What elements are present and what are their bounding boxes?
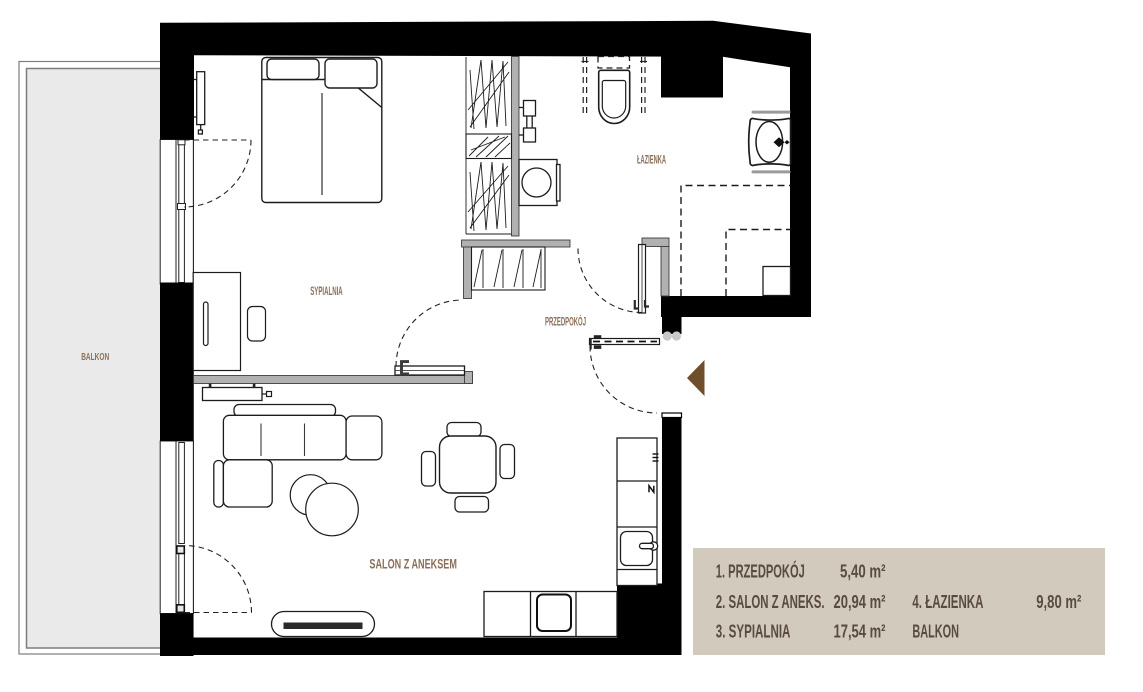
svg-text:1. PRZEDPOKÓJ: 1. PRZEDPOKÓJ <box>716 561 805 582</box>
svg-text:2. SALON Z ANEKS.: 2. SALON Z ANEKS. <box>716 591 825 612</box>
svg-text:17,54 m²: 17,54 m² <box>834 621 886 642</box>
svg-text:5,40 m²: 5,40 m² <box>840 561 886 582</box>
svg-text:3. SYPIALNIA: 3. SYPIALNIA <box>716 621 791 642</box>
svg-text:20,94 m²: 20,94 m² <box>834 591 886 612</box>
svg-text:SALON Z ANEKSEM: SALON Z ANEKSEM <box>369 557 457 572</box>
svg-text:BALKON: BALKON <box>912 621 959 642</box>
svg-text:9,80 m²: 9,80 m² <box>1036 591 1081 612</box>
svg-text:ŁAZIENKA: ŁAZIENKA <box>637 154 666 167</box>
svg-text:PRZEDPOKÓJ: PRZEDPOKÓJ <box>545 314 586 329</box>
svg-text:SYPIALNIA: SYPIALNIA <box>310 285 343 298</box>
svg-text:4. ŁAZIENKA: 4. ŁAZIENKA <box>912 591 983 612</box>
svg-text:BALKON: BALKON <box>81 351 109 363</box>
